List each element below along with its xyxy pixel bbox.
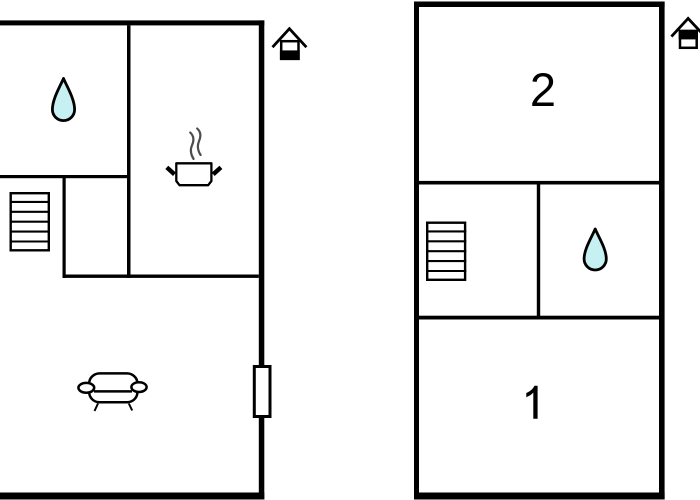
svg-text:2: 2 (530, 63, 556, 116)
